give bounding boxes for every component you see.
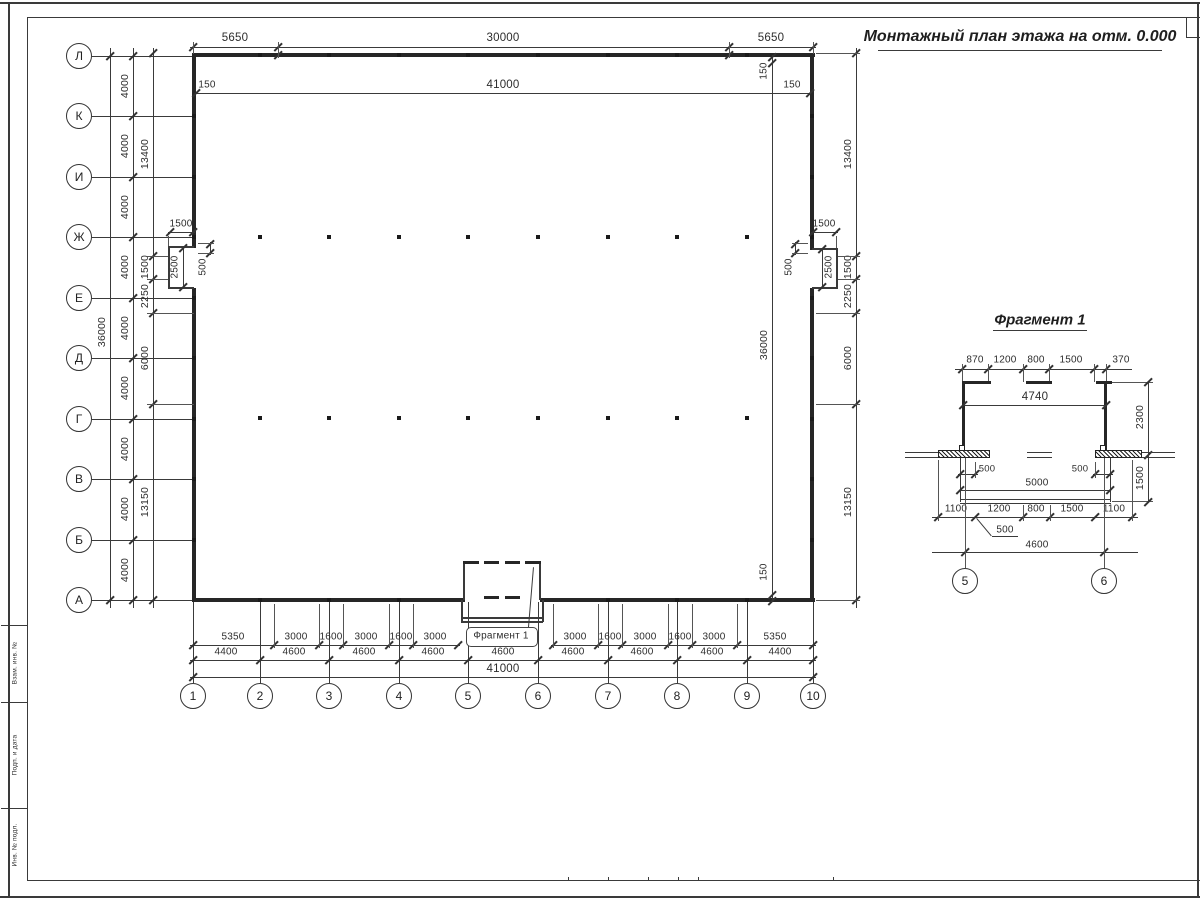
axis-col-circle: 6 — [1091, 568, 1117, 594]
axis-leader — [92, 116, 192, 117]
axis-row-circle: Ж — [66, 224, 92, 250]
ext-line — [147, 313, 194, 314]
dim-line — [183, 247, 184, 289]
frame-inner-bottom — [27, 880, 1200, 881]
axis-col-circle: 5 — [455, 683, 481, 709]
column-dot — [810, 296, 814, 300]
ext-line — [1106, 364, 1107, 382]
dim-label: 4400 — [768, 647, 791, 658]
dim-label: 3000 — [563, 632, 586, 643]
ext-line — [319, 604, 320, 648]
column-dot — [192, 538, 196, 542]
dim-label: 4000 — [119, 74, 131, 98]
dim-label: 6000 — [842, 346, 854, 370]
leader-shelf — [992, 536, 1018, 537]
column-dot — [192, 417, 196, 421]
dim-label: 370 — [1112, 355, 1129, 366]
column-dot — [327, 235, 331, 239]
entrance-corner — [463, 561, 479, 564]
ext-line — [729, 42, 730, 58]
dim-label: 1600 — [668, 632, 691, 643]
frame-outer-top — [0, 2, 1200, 4]
axis-row-circle: К — [66, 103, 92, 129]
dim-label: 3000 — [284, 632, 307, 643]
anchor-plate — [959, 445, 965, 451]
strip-divider — [1, 808, 27, 809]
dim-label: 4600 — [700, 647, 723, 658]
dim-label: 4000 — [119, 558, 131, 582]
dim-label: 3000 — [423, 632, 446, 643]
axis-row-circle: В — [66, 466, 92, 492]
axis-row-circle: Д — [66, 345, 92, 371]
wall-line — [1027, 457, 1052, 458]
column-dot — [192, 235, 196, 239]
dim-label: 4000 — [119, 195, 131, 219]
dim-label: 500 — [198, 258, 209, 275]
ext-line — [278, 42, 279, 58]
right-niche — [812, 287, 838, 289]
column-dot — [675, 416, 679, 420]
ext-line — [1094, 364, 1095, 382]
dim-label: 13150 — [139, 487, 151, 517]
axis-col-circle: 7 — [595, 683, 621, 709]
dim-label: 4000 — [119, 316, 131, 340]
column-dot — [810, 114, 814, 118]
porch-outline — [461, 617, 543, 619]
dim-label: 1200 — [987, 504, 1010, 515]
dim-label: 41000 — [487, 663, 520, 675]
anchor-plate — [1100, 445, 1106, 451]
axis-leader — [747, 602, 748, 683]
dim-label: 13400 — [842, 139, 854, 169]
wall-line — [1027, 452, 1052, 453]
dim-label: 1500 — [842, 255, 854, 279]
dim-line — [196, 93, 811, 94]
ext-line — [962, 364, 963, 382]
dim-line — [190, 677, 816, 678]
axis-row-circle: Е — [66, 285, 92, 311]
titleblock-tick — [833, 877, 834, 881]
ext-line — [737, 604, 738, 648]
ext-line — [193, 42, 194, 54]
ext-line — [1023, 505, 1024, 521]
column-dot — [327, 416, 331, 420]
axis-col-circle: 9 — [734, 683, 760, 709]
ext-line — [816, 600, 860, 601]
axis-leader — [92, 540, 192, 541]
dim-label: 30000 — [487, 32, 520, 44]
porch-outline — [960, 458, 961, 502]
ext-line — [692, 604, 693, 648]
dim-label: 500 — [979, 464, 995, 475]
ext-line — [792, 243, 808, 244]
dim-label: 3000 — [702, 632, 725, 643]
column-dot — [192, 296, 196, 300]
porch-outline — [1110, 458, 1111, 502]
wall-left-lower — [192, 288, 196, 602]
axis-col-circle: 2 — [247, 683, 273, 709]
ext-line — [988, 364, 989, 382]
drawing-title: Монтажный план этажа на отм. 0.000 — [864, 28, 1177, 46]
wall-left-upper — [192, 53, 196, 248]
strip-divider — [1, 625, 27, 626]
column-dot — [536, 53, 540, 57]
titleblock-tick — [698, 877, 699, 881]
entrance-dash — [484, 561, 499, 564]
column-dot — [536, 416, 540, 420]
dim-label: 1500 — [169, 219, 192, 230]
entrance-dash — [484, 596, 499, 599]
column-dot — [466, 235, 470, 239]
axis-row-circle: Г — [66, 406, 92, 432]
dim-label: 1500 — [812, 219, 835, 230]
dim-label: 13150 — [842, 487, 854, 517]
dim-label: 1600 — [598, 632, 621, 643]
axis-col-circle: 10 — [800, 683, 826, 709]
porch-outline — [461, 600, 463, 622]
dim-label: 150 — [198, 80, 215, 91]
dim-label: 2500 — [170, 255, 181, 278]
ext-line — [389, 604, 390, 648]
fragment-title: Фрагмент 1 — [994, 312, 1085, 329]
entrance-dash — [505, 596, 520, 599]
dim-line — [960, 490, 1111, 491]
wall-hatch — [1095, 450, 1142, 458]
dim-label: 500 — [996, 525, 1013, 536]
entrance-dash — [505, 561, 520, 564]
wall-hatch — [938, 450, 990, 458]
porch-outline — [461, 621, 543, 623]
axis-leader — [260, 602, 261, 683]
dim-label: 150 — [759, 62, 770, 79]
dim-label: 150 — [759, 563, 770, 580]
panel-stud — [1104, 381, 1107, 453]
axis-col-circle: 4 — [386, 683, 412, 709]
ext-line — [668, 604, 669, 648]
column-dot — [258, 416, 262, 420]
dim-label: 1500 — [139, 255, 151, 279]
frame-outer-bottom — [0, 896, 1200, 898]
titleblock-tick — [568, 877, 569, 881]
column-dot — [606, 53, 610, 57]
dim-line — [133, 48, 134, 608]
dim-label: 4000 — [119, 437, 131, 461]
frame-strip-label: Подп. и дата — [12, 735, 19, 776]
ext-line — [147, 404, 194, 405]
axis-row-circle: Л — [66, 43, 92, 69]
titleblock-tick — [608, 877, 609, 881]
axis-leader — [92, 237, 192, 238]
ext-line — [975, 462, 976, 478]
dim-label: 1500 — [1134, 466, 1146, 490]
ext-line — [816, 404, 860, 405]
dim-label: 36000 — [96, 317, 108, 347]
dim-label: 5650 — [758, 32, 784, 44]
column-dot — [606, 416, 610, 420]
dim-line — [772, 55, 773, 602]
axis-leader — [399, 602, 400, 683]
dim-label: 4600 — [491, 647, 514, 658]
dim-label: 500 — [784, 258, 795, 275]
frame-outer-right — [1197, 2, 1199, 897]
ext-line — [598, 604, 599, 648]
dim-label: 4000 — [119, 376, 131, 400]
column-dot — [536, 235, 540, 239]
ext-line — [274, 604, 275, 648]
dim-label: 4600 — [561, 647, 584, 658]
ext-line — [816, 313, 860, 314]
porch-outline — [542, 600, 544, 622]
frame-outer-left — [8, 2, 10, 897]
corner-stamp-left — [1186, 17, 1187, 37]
corner-stamp-bottom — [1186, 37, 1200, 38]
entrance-jamb — [539, 562, 541, 600]
right-niche — [812, 248, 838, 250]
column-dot — [810, 175, 814, 179]
titleblock-tick — [648, 877, 649, 881]
wall-line — [905, 457, 940, 458]
dim-line — [963, 405, 1106, 406]
column-dot — [192, 114, 196, 118]
axis-leader — [92, 177, 192, 178]
column-dot — [192, 477, 196, 481]
fragment-callout-label: Фрагмент 1 — [473, 631, 528, 642]
ext-line — [553, 604, 554, 648]
ext-line — [938, 460, 939, 521]
column-dot — [810, 356, 814, 360]
column-dot — [810, 235, 814, 239]
column-dot — [745, 235, 749, 239]
axis-col-circle: 5 — [952, 568, 978, 594]
dim-line — [153, 48, 154, 608]
right-niche — [836, 248, 838, 289]
dim-label: 2500 — [824, 255, 835, 278]
entrance-corner — [525, 561, 541, 564]
ext-line — [413, 604, 414, 648]
dim-label: 4600 — [282, 647, 305, 658]
column-dot — [327, 53, 331, 57]
ext-line — [792, 253, 808, 254]
column-dot — [258, 53, 262, 57]
dim-label: 2250 — [842, 284, 854, 308]
panel-bracket — [962, 381, 991, 384]
ext-line — [198, 243, 214, 244]
column-dot — [675, 235, 679, 239]
axis-row-circle: И — [66, 164, 92, 190]
axis-leader — [329, 602, 330, 683]
dim-label: 150 — [783, 80, 800, 91]
frame-inner-top — [27, 17, 1200, 18]
wall-line — [1141, 452, 1175, 453]
column-dot — [745, 53, 749, 57]
dim-label: 870 — [966, 355, 983, 366]
ext-line — [1049, 364, 1050, 382]
dim-label: 4600 — [352, 647, 375, 658]
dim-label: 500 — [1072, 464, 1088, 475]
dim-label: 2300 — [1134, 405, 1146, 429]
ext-line — [622, 604, 623, 648]
column-dot — [258, 235, 262, 239]
ext-line — [813, 42, 814, 54]
panel-stud — [962, 381, 965, 453]
dim-line — [856, 48, 857, 608]
entrance-jamb — [463, 562, 465, 600]
strip-divider — [1, 702, 27, 703]
floor-plan-sheet: Взам. инв. №Подп. и датаИнв. № подл.Монт… — [0, 0, 1200, 900]
dim-label: 5650 — [222, 32, 248, 44]
axis-leader — [965, 458, 966, 568]
column-dot — [192, 175, 196, 179]
dim-label: 5350 — [763, 632, 786, 643]
column-dot — [810, 417, 814, 421]
dim-label: 4600 — [630, 647, 653, 658]
ext-line — [836, 236, 837, 248]
axis-col-circle: 1 — [180, 683, 206, 709]
dim-label: 2250 — [139, 284, 151, 308]
drawing-title-underline — [878, 50, 1162, 51]
ext-line — [147, 256, 168, 257]
ext-line — [1132, 460, 1133, 521]
ext-line — [198, 253, 214, 254]
wall-line — [905, 452, 940, 453]
dim-label: 41000 — [487, 79, 520, 91]
ext-line — [838, 256, 860, 257]
dim-label: 1500 — [1060, 504, 1083, 515]
fragment-title-underline — [993, 330, 1087, 331]
ext-line — [147, 279, 168, 280]
dim-label: 36000 — [758, 330, 770, 360]
dim-line — [1148, 382, 1149, 502]
axis-col-circle: 3 — [316, 683, 342, 709]
wall-line — [1141, 457, 1175, 458]
dim-label: 1100 — [945, 504, 967, 515]
frame-inner-left — [27, 17, 28, 881]
column-dot — [745, 416, 749, 420]
dim-label: 4400 — [214, 647, 237, 658]
dim-label: 4600 — [1025, 540, 1048, 551]
axis-row-circle: А — [66, 587, 92, 613]
dim-label: 1500 — [1059, 355, 1082, 366]
dim-label: 5350 — [221, 632, 244, 643]
dim-label: 4600 — [421, 647, 444, 658]
column-dot — [397, 235, 401, 239]
frame-strip-label: Взам. инв. № — [12, 642, 19, 685]
column-dot — [606, 235, 610, 239]
ext-line — [1095, 462, 1096, 478]
dim-label: 6000 — [139, 346, 151, 370]
dim-label: 4000 — [119, 134, 131, 158]
wall-top — [192, 53, 815, 57]
column-dot — [466, 416, 470, 420]
column-dot — [397, 53, 401, 57]
ext-line — [343, 604, 344, 648]
axis-col-circle: 6 — [525, 683, 551, 709]
dim-label: 3000 — [354, 632, 377, 643]
dim-label: 3000 — [633, 632, 656, 643]
axis-leader — [608, 602, 609, 683]
dim-label: 1200 — [993, 355, 1016, 366]
axis-leader — [538, 602, 539, 683]
column-dot — [810, 538, 814, 542]
axis-leader — [1104, 458, 1105, 568]
axis-leader — [92, 419, 192, 420]
dim-label: 800 — [1027, 355, 1044, 366]
dim-label: 4740 — [1022, 391, 1048, 403]
axis-leader — [92, 479, 192, 480]
leader-line — [976, 518, 992, 537]
axis-leader — [677, 602, 678, 683]
wall-right-lower — [810, 288, 814, 602]
dim-label: 800 — [1027, 504, 1044, 515]
column-dot — [810, 477, 814, 481]
dim-label: 13400 — [139, 139, 151, 169]
ext-line — [168, 236, 169, 246]
column-dot — [397, 416, 401, 420]
axis-row-circle: Б — [66, 527, 92, 553]
dim-label: 4000 — [119, 497, 131, 521]
ext-line — [838, 279, 860, 280]
column-dot — [466, 53, 470, 57]
dim-label: 5000 — [1025, 478, 1048, 489]
frame-strip-label: Инв. № подл. — [12, 824, 19, 867]
dim-label: 1100 — [1103, 504, 1125, 515]
porch-outline — [960, 499, 1111, 500]
dim-line — [190, 47, 816, 48]
dim-label: 1600 — [319, 632, 342, 643]
column-dot — [675, 53, 679, 57]
dim-line — [190, 660, 816, 661]
dim-line — [932, 517, 1138, 518]
titleblock-tick — [678, 877, 679, 881]
ext-line — [1050, 505, 1051, 521]
column-dot — [192, 356, 196, 360]
dim-line — [110, 48, 111, 608]
ext-line — [1023, 364, 1024, 382]
ext-line — [816, 53, 860, 54]
panel-bracket — [1026, 381, 1052, 384]
axis-col-circle: 8 — [664, 683, 690, 709]
dim-label: 1600 — [389, 632, 412, 643]
dim-label: 4000 — [119, 255, 131, 279]
